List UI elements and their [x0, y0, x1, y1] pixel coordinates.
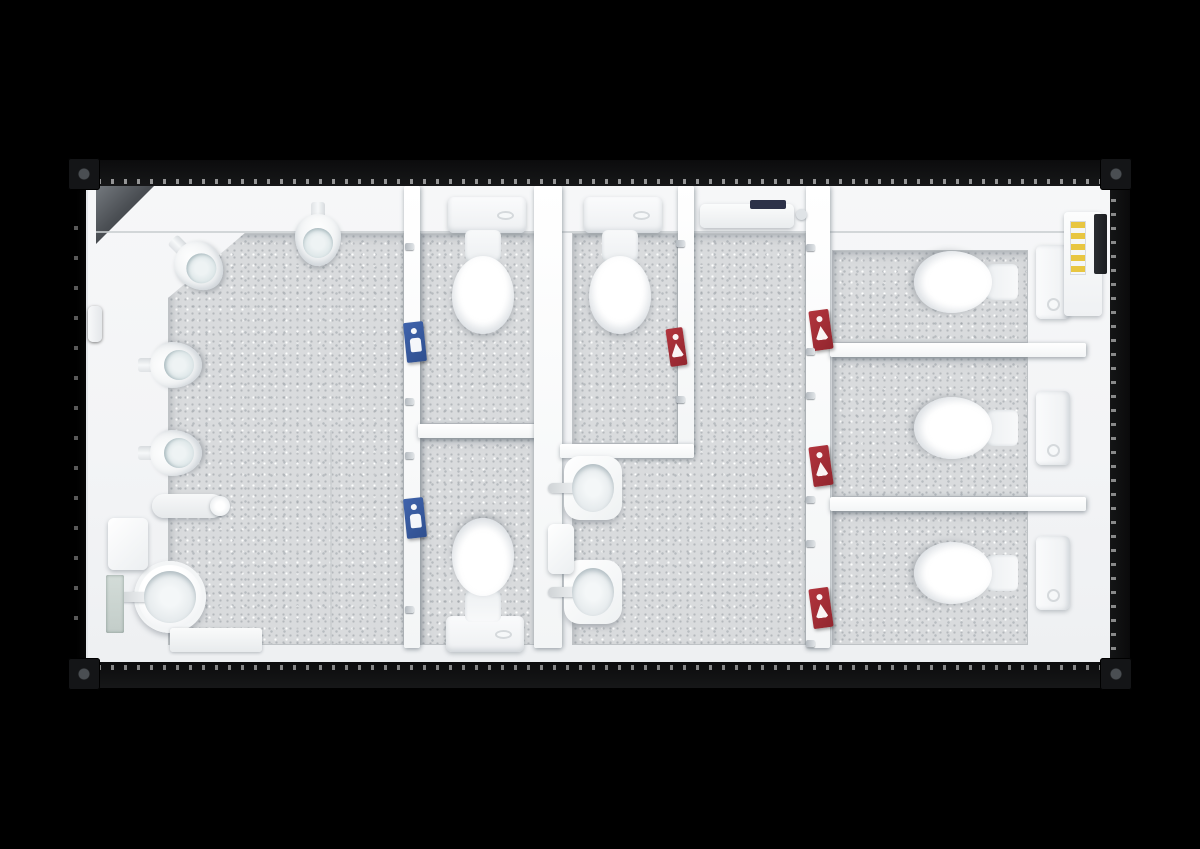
flush-button	[497, 211, 514, 220]
toilet-womens-stall	[588, 230, 652, 334]
floor-shelf-mens	[170, 628, 262, 652]
corrugated-right-side	[1110, 188, 1130, 660]
heater-valve	[796, 209, 807, 220]
corner-casting-bottom-right	[1100, 658, 1132, 690]
flush-button	[633, 211, 650, 220]
flush-button	[1047, 298, 1060, 311]
toilet-bowl	[914, 397, 992, 459]
toilet-bowl	[914, 542, 992, 604]
entrance-door-handle	[88, 306, 102, 342]
toilet-bowl	[914, 251, 992, 313]
toilet-bowl	[452, 256, 514, 334]
toilet-right-stall-1	[914, 250, 1018, 314]
basin-bowl	[572, 464, 614, 512]
washbasin-womens-1	[564, 456, 622, 520]
corner-casting-top-left	[68, 158, 100, 190]
door-hinge	[806, 640, 815, 647]
door-hinge	[405, 606, 414, 613]
mens-floor-seam	[330, 430, 332, 645]
toilet-mens-stall-1	[451, 230, 515, 334]
door-hinge	[676, 240, 685, 247]
soap-dispenser-mens	[108, 518, 148, 570]
sanitary-container-floorplan-render	[0, 0, 1200, 849]
urinal-top-wall	[295, 202, 341, 266]
cistern-right-stall-2	[1036, 391, 1070, 465]
urinal-left-wall-2	[138, 430, 202, 476]
door-hinge	[806, 540, 815, 547]
door-hinge	[806, 244, 815, 251]
utility-faucet-mens	[152, 494, 224, 518]
corrugated-top-edge	[88, 160, 1112, 186]
cistern-mens-stall-1	[448, 197, 526, 233]
heater-control	[750, 200, 786, 209]
door-hinge	[806, 496, 815, 503]
mens-stall-partition	[418, 424, 538, 438]
womens-stall-side-wall	[678, 186, 694, 450]
basin-bowl	[144, 571, 196, 623]
right-stall-partition-2	[830, 497, 1086, 511]
mens-stall-1-door-sign	[403, 321, 427, 363]
door-hinge	[405, 243, 414, 250]
mens-stall-door-wall	[404, 186, 420, 648]
corrugated-left-side	[72, 200, 86, 640]
panel-wiring	[1070, 221, 1086, 275]
urinal-basin	[164, 350, 194, 380]
soap-dispenser-womens	[548, 524, 574, 574]
corner-casting-bottom-left	[68, 658, 100, 690]
cistern-womens-stall	[584, 197, 662, 233]
washbasin-mens	[134, 561, 206, 633]
mens-stall-2-door-sign	[403, 497, 427, 539]
door-hinge	[806, 392, 815, 399]
right-stall-partition-1	[830, 343, 1086, 357]
door-hinge	[405, 398, 414, 405]
flush-button	[1047, 444, 1060, 457]
door-hinge	[676, 396, 685, 403]
urinal-left-wall-1	[138, 342, 202, 388]
flush-button	[1047, 589, 1060, 602]
right-stall-door-wall	[806, 186, 830, 648]
urinal-basin	[303, 228, 333, 258]
basin-bowl	[572, 568, 614, 616]
toilet-bowl	[589, 256, 651, 334]
toilet-mens-stall-2	[451, 518, 515, 622]
door-hinge	[405, 452, 414, 459]
center-divider-wall	[534, 186, 562, 648]
wall-heater	[700, 204, 794, 228]
flush-button	[495, 630, 512, 639]
wall-vent-slot	[1094, 214, 1107, 274]
toilet-right-stall-3	[914, 541, 1018, 605]
corrugated-bottom-edge	[88, 662, 1112, 688]
door-hinge	[806, 348, 815, 355]
corner-casting-top-right	[1100, 158, 1132, 190]
urinal-basin	[164, 438, 194, 468]
cistern-right-stall-3	[1036, 536, 1070, 610]
mirror-mens	[106, 575, 124, 633]
toilet-right-stall-2	[914, 396, 1018, 460]
toilet-bowl	[452, 518, 514, 596]
